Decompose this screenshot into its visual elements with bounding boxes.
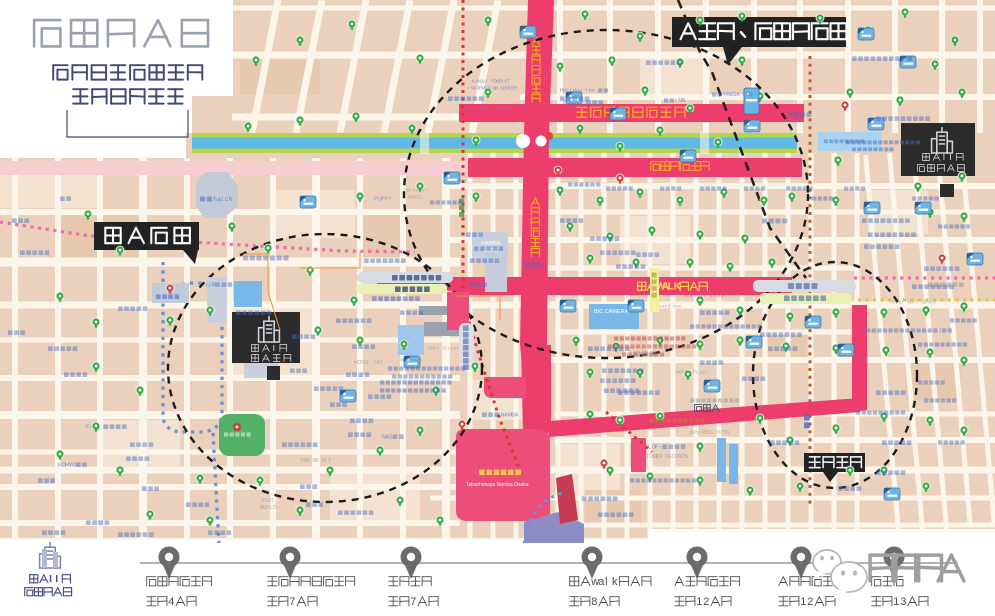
svg-text:NAMBA: NAMBA	[481, 241, 501, 247]
svg-text:N: N	[749, 92, 753, 98]
svg-text:I: I	[586, 88, 587, 94]
svg-text:I: I	[486, 78, 487, 83]
svg-text:I: I	[949, 152, 951, 162]
svg-text:2: 2	[703, 596, 709, 608]
svg-text:1: 1	[696, 596, 702, 608]
svg-text:l: l	[605, 576, 607, 588]
svg-text:c: c	[225, 197, 228, 203]
svg-text:i: i	[916, 300, 917, 305]
svg-text:I: I	[490, 85, 491, 90]
svg-text:R: R	[514, 85, 517, 90]
svg-text:I: I	[943, 152, 945, 162]
svg-text:L: L	[367, 360, 370, 366]
svg-text:0: 0	[645, 352, 648, 358]
svg-text:l: l	[902, 300, 903, 305]
svg-text:A: A	[515, 412, 519, 418]
svg-text:I: I	[273, 343, 275, 353]
svg-text:A: A	[705, 370, 708, 375]
svg-text:g: g	[97, 424, 100, 430]
svg-text:i: i	[570, 88, 571, 94]
svg-text:h: h	[229, 197, 232, 203]
svg-text:L: L	[648, 444, 651, 450]
svg-text:T: T	[328, 458, 331, 464]
svg-text:I: I	[468, 85, 469, 90]
svg-text:i: i	[427, 188, 428, 193]
svg-text:7: 7	[289, 596, 295, 608]
svg-text:h: h	[213, 197, 216, 203]
svg-text:I: I	[502, 78, 503, 83]
svg-text:7: 7	[410, 596, 416, 608]
svg-text:R: R	[659, 454, 663, 460]
svg-text:T: T	[507, 78, 510, 83]
svg-text:I: I	[325, 458, 326, 464]
svg-text:I: I	[675, 98, 676, 104]
svg-text:M: M	[418, 358, 422, 363]
svg-text:I: I	[742, 92, 743, 98]
svg-text:l: l	[567, 88, 568, 94]
svg-text:N: N	[682, 98, 686, 104]
svg-text:1: 1	[800, 596, 806, 608]
svg-text:BIC CAMERA: BIC CAMERA	[594, 309, 629, 315]
svg-text:2: 2	[807, 596, 813, 608]
svg-text:1: 1	[939, 328, 942, 334]
svg-text:D: D	[273, 505, 277, 511]
svg-text:Takashimaya Namba Osaka: Takashimaya Namba Osaka	[466, 482, 529, 488]
svg-text:I: I	[267, 505, 268, 511]
svg-text:I: I	[403, 358, 404, 363]
svg-text:U: U	[307, 458, 311, 464]
svg-text:R: R	[212, 282, 216, 288]
svg-text:I: I	[272, 498, 273, 504]
svg-text:s: s	[475, 105, 477, 110]
svg-text:4: 4	[168, 596, 174, 608]
svg-text:N: N	[495, 85, 498, 90]
svg-text:S: S	[711, 430, 714, 435]
svg-text:1: 1	[893, 596, 899, 608]
svg-text:I: I	[699, 430, 700, 435]
svg-text:I: I	[55, 574, 58, 585]
svg-text:l: l	[491, 105, 492, 110]
svg-text:Y: Y	[388, 196, 392, 202]
svg-text:8: 8	[591, 596, 597, 608]
svg-text:k: k	[612, 576, 618, 588]
svg-text:!: !	[724, 294, 725, 299]
svg-text:3: 3	[900, 596, 906, 608]
svg-text:I: I	[49, 574, 52, 585]
svg-text:↑: ↑	[659, 444, 662, 450]
svg-text:n: n	[592, 88, 595, 94]
svg-text:S: S	[389, 434, 393, 440]
svg-text:J: J	[208, 282, 211, 288]
svg-text:i: i	[90, 424, 91, 430]
